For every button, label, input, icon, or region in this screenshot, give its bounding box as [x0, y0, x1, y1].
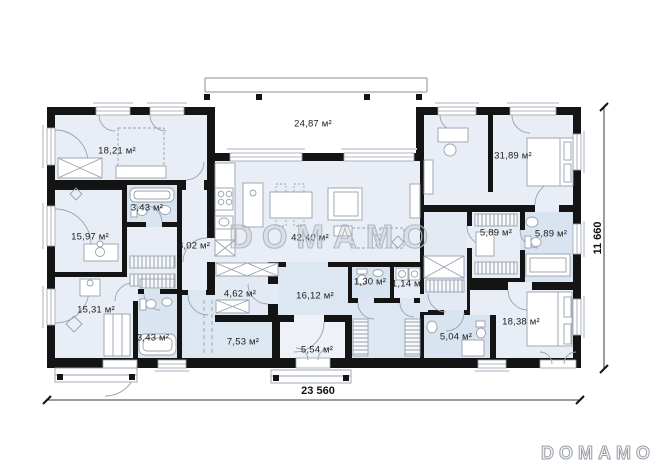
bed-master: [527, 138, 573, 186]
room-label-terrace: 24,87 м²: [294, 119, 332, 130]
room-label-bathroom-right: 5,89 м²: [535, 229, 567, 240]
room-label-room-bottom-left: 15,31 м²: [77, 305, 115, 316]
room-label-corridor-left: 8,02 м²: [178, 241, 210, 252]
room-label-bedroom-top-left: 18,21 м²: [98, 146, 136, 157]
room-label-wardrobe-right: 5,89 м²: [480, 228, 512, 239]
room-label-bedroom-bottom-right: 18,38 м²: [502, 317, 540, 328]
terrace-structure: [204, 78, 427, 100]
room-label-wc-small: 1,30 м²: [354, 277, 386, 288]
room-label-bathroom-left-upper: 3,43 м²: [131, 203, 163, 214]
wardrobe-x: [58, 158, 102, 178]
tv-unit: [410, 184, 420, 218]
room-label-room-left-middle: 15,97 м²: [71, 232, 109, 243]
porches: [55, 368, 351, 383]
watermark-center: DOMAMO: [229, 218, 437, 256]
room-label-bathroom-left-lower: 3,43 м²: [137, 333, 169, 344]
floor-plan-page: 18,21 м² 24,87 м² 31,89 м² 15,97 м² 3,43…: [0, 0, 665, 470]
room-label-bedroom-top-right: 31,89 м²: [494, 151, 532, 162]
room-label-hall-center: 16,12 м²: [296, 291, 334, 302]
bathtub: [130, 188, 174, 202]
room-label-vestibule: 5,54 м²: [301, 345, 333, 356]
room-label-hallway-462: 4,62 м²: [224, 289, 256, 300]
dimension-width: 23 560: [301, 385, 335, 397]
room-label-room-753: 7,53 м²: [227, 337, 259, 348]
terrace-posts: [204, 94, 422, 100]
dimension-height: 11 660: [592, 221, 604, 254]
room-label-bathroom-bottom: 5,04 м²: [440, 332, 472, 343]
room-label-storage-small: 1,14 м²: [392, 279, 424, 290]
brand-logo: DOMAMO: [541, 443, 655, 464]
